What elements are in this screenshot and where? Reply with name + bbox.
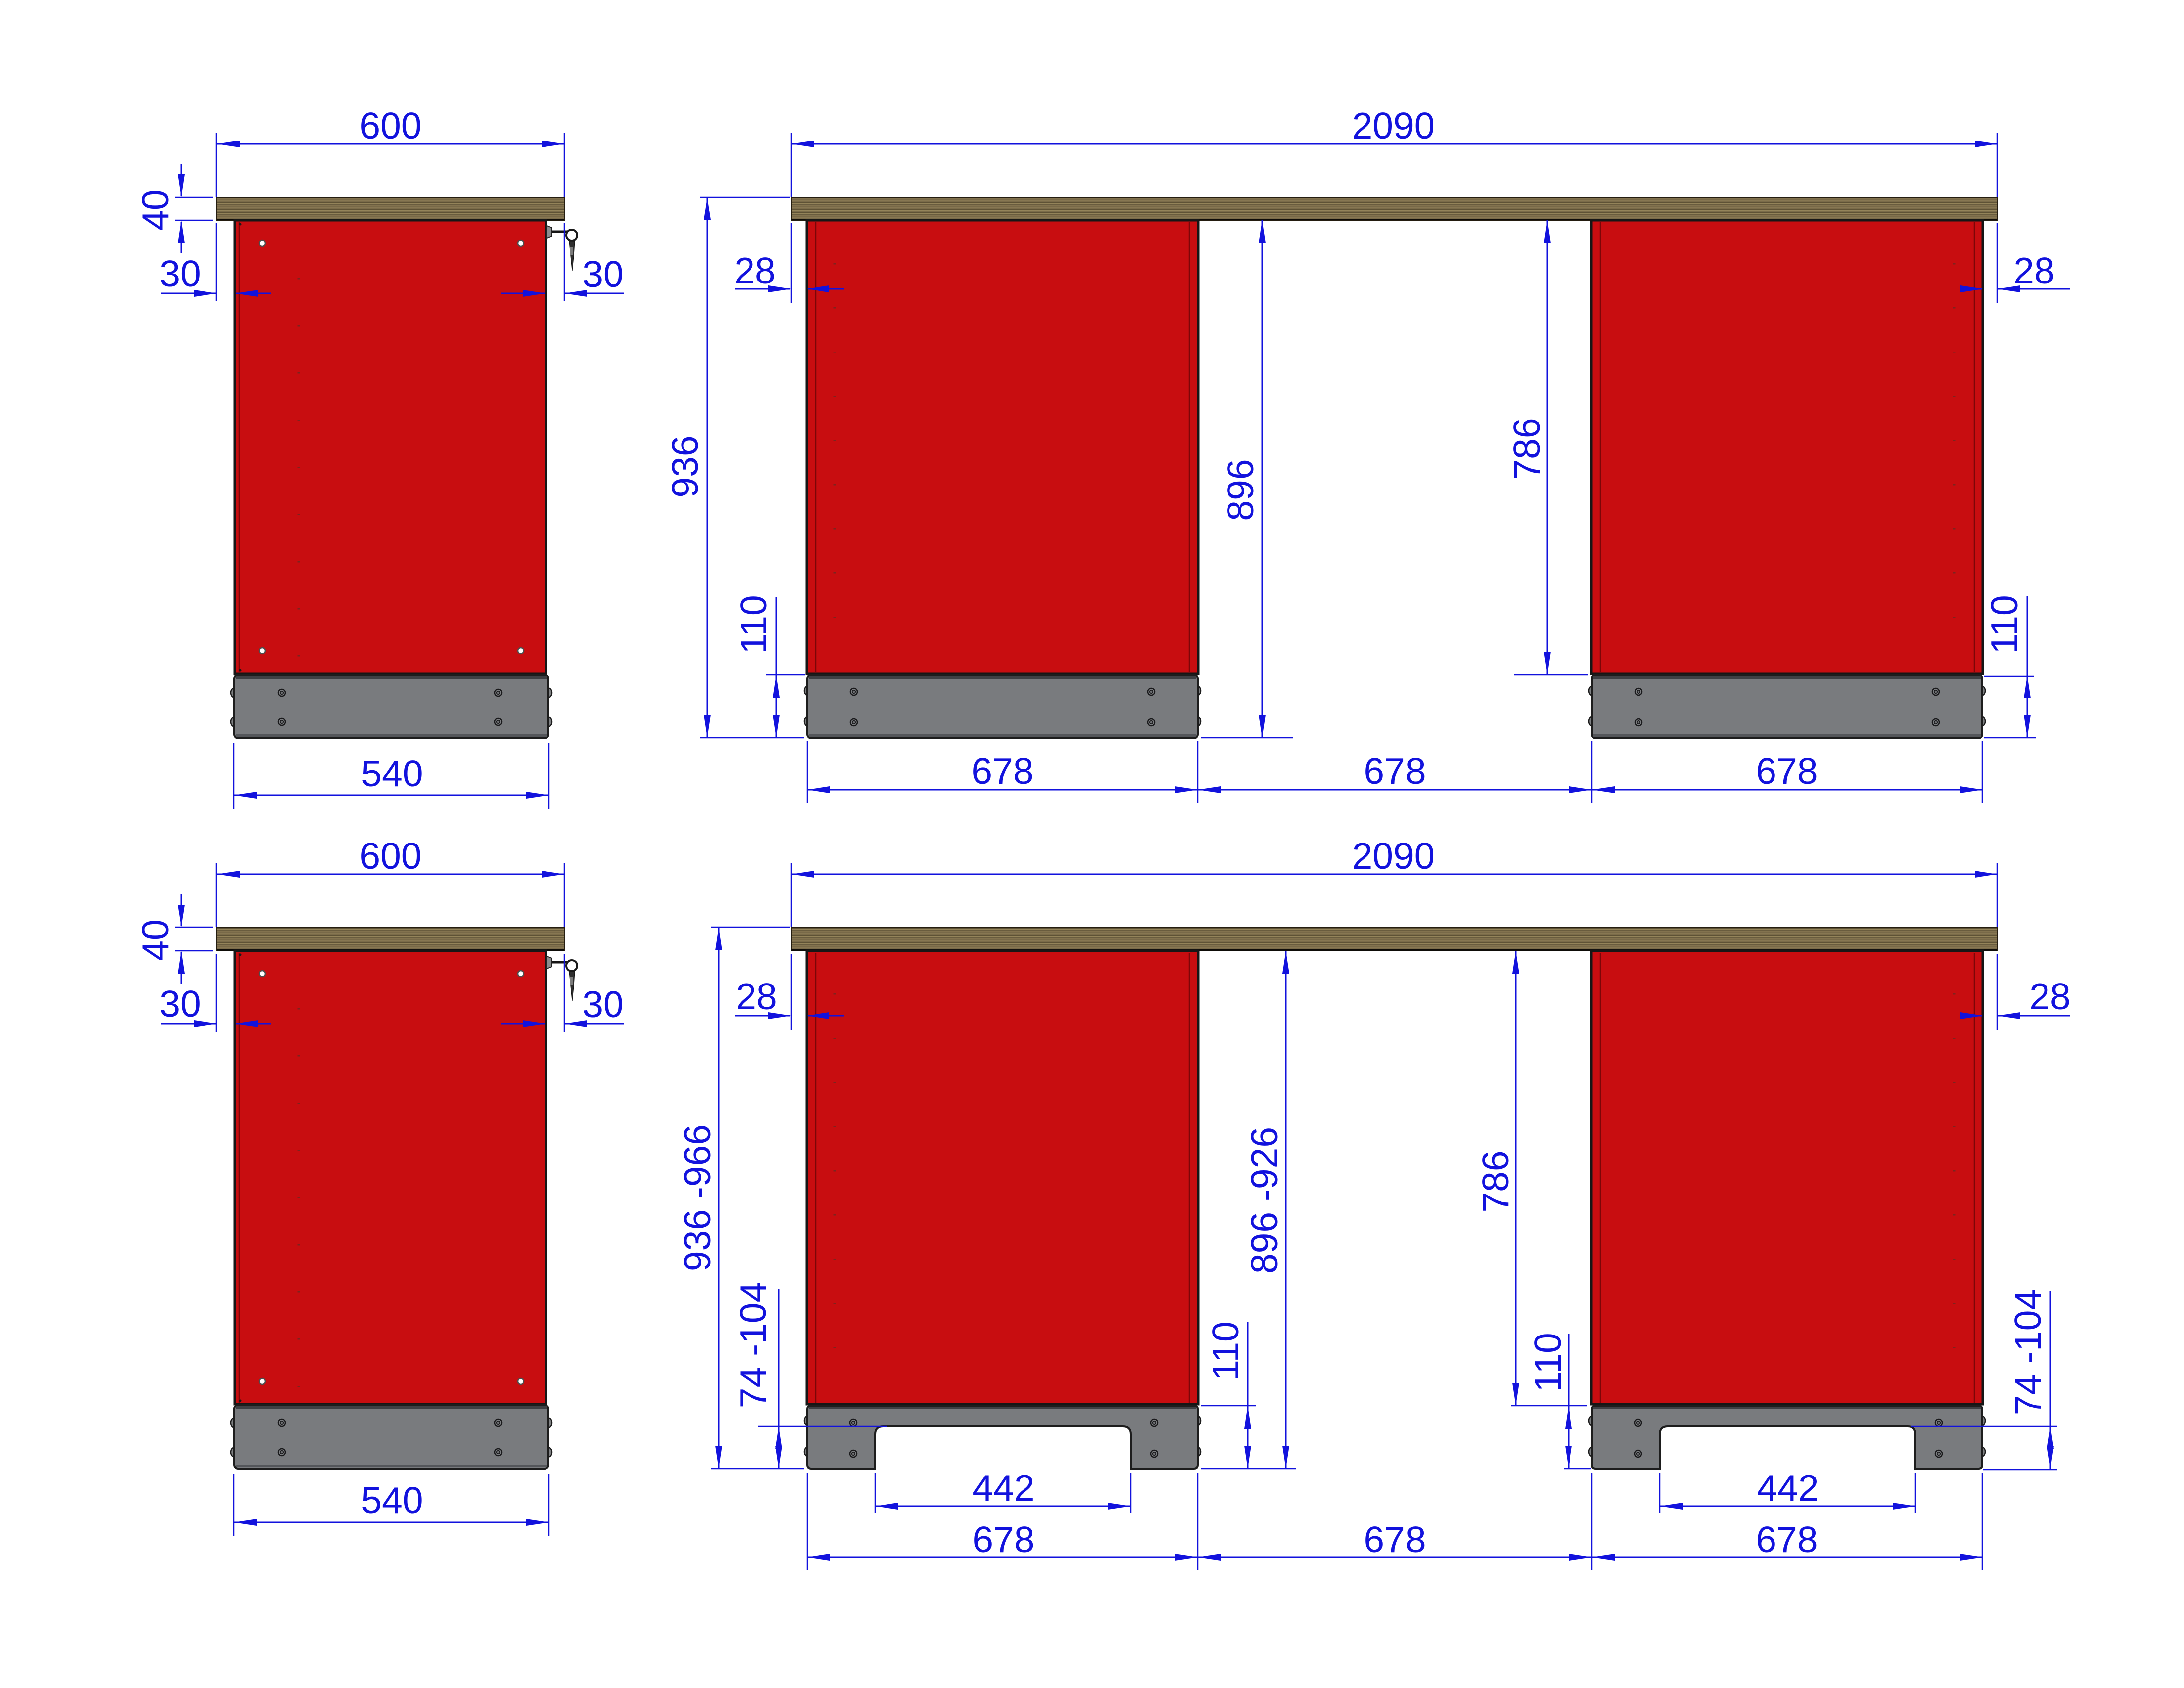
svg-text:28: 28 [734,250,775,291]
svg-text:28: 28 [2013,250,2054,291]
svg-text:30: 30 [159,983,201,1025]
svg-text:678: 678 [972,1519,1034,1560]
svg-text:110: 110 [1983,595,2025,654]
svg-text:30: 30 [582,984,623,1025]
svg-text:40: 40 [135,919,176,961]
svg-text:678: 678 [1756,1519,1818,1560]
svg-text:28: 28 [736,976,777,1017]
svg-text:936: 936 [664,435,706,497]
svg-text:110: 110 [1205,1321,1246,1381]
svg-text:678: 678 [1364,1519,1426,1560]
svg-text:540: 540 [361,1479,423,1521]
svg-text:2090: 2090 [1352,105,1435,146]
svg-text:40: 40 [135,189,176,230]
svg-text:600: 600 [359,835,421,877]
svg-text:30: 30 [159,253,201,294]
svg-text:110: 110 [733,595,774,654]
svg-text:110: 110 [1527,1333,1569,1392]
svg-text:678: 678 [971,750,1033,792]
svg-text:30: 30 [582,253,623,295]
svg-text:28: 28 [2029,976,2070,1017]
svg-text:936 -966: 936 -966 [677,1125,718,1271]
svg-text:74 -104: 74 -104 [732,1282,774,1408]
svg-text:600: 600 [359,105,421,146]
svg-text:678: 678 [1756,750,1818,792]
svg-text:442: 442 [1757,1467,1819,1509]
svg-text:678: 678 [1364,750,1426,792]
svg-text:786: 786 [1506,418,1548,480]
svg-text:540: 540 [361,753,423,794]
svg-text:2090: 2090 [1352,835,1435,877]
svg-text:896 -926: 896 -926 [1243,1127,1285,1274]
svg-text:442: 442 [972,1467,1034,1509]
svg-text:896: 896 [1220,459,1261,521]
svg-text:786: 786 [1475,1150,1516,1212]
svg-text:74 -104: 74 -104 [2007,1289,2048,1415]
